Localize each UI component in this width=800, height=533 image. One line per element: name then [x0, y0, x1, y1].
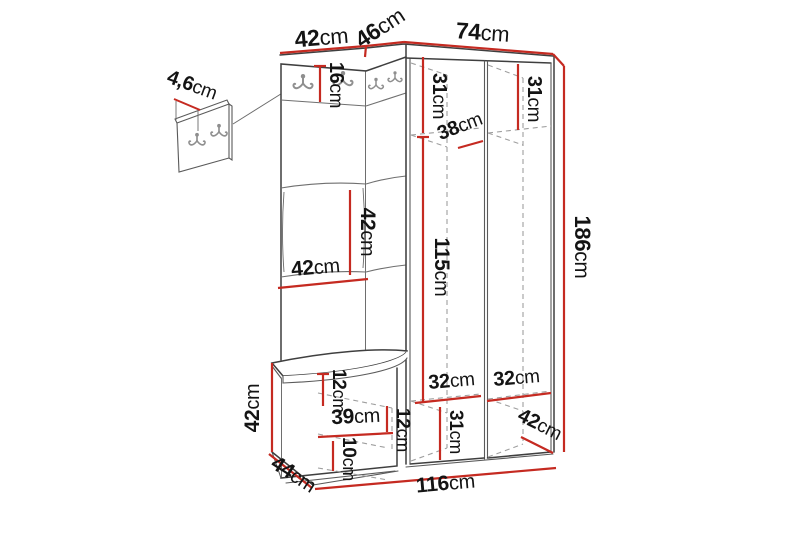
- dimension-label: 31cm: [428, 73, 450, 119]
- diagram-canvas: 4,6cm 42cm 46cm 74cm 16cm 31cm 31cm: [0, 0, 800, 533]
- dimension-label: 42cm: [294, 22, 350, 53]
- dimension-label: 115cm: [430, 238, 453, 297]
- dimension-label: 10cm: [338, 437, 359, 481]
- hook-panel-face: [177, 104, 229, 172]
- dimension-label: 42cm: [290, 254, 341, 281]
- corner-face: [366, 57, 406, 352]
- dimension-label: 12cm: [392, 408, 413, 452]
- hook-panel-inset: [175, 87, 292, 172]
- dimension-label: 4,6cm: [164, 66, 220, 104]
- dimension-label: 32cm: [492, 365, 540, 391]
- dimension-bench-height: 42cm: [241, 363, 272, 452]
- dimension-label: 31cm: [445, 410, 466, 454]
- left-panel-face: [281, 64, 366, 360]
- dimension-total-height: 186cm: [553, 54, 595, 452]
- dimension-label: 31cm: [523, 76, 545, 122]
- dimension-hook-board-height: 16cm: [314, 62, 347, 108]
- dimension-label: 42cm: [241, 384, 264, 433]
- dimension-line: [174, 99, 200, 110]
- dimension-label: 116cm: [415, 469, 476, 497]
- furniture-dimension-diagram: 4,6cm 42cm 46cm 74cm 16cm 31cm 31cm: [0, 0, 800, 533]
- corner-section: [366, 57, 406, 352]
- dimension-label: 74cm: [455, 17, 510, 47]
- dimension-label: 42cm: [356, 208, 379, 257]
- dimension-label: 16cm: [325, 62, 347, 108]
- dimension-detail-thickness: 4,6cm: [164, 66, 220, 110]
- dimension-label: 39cm: [331, 404, 381, 430]
- dimension-label: 32cm: [427, 368, 475, 394]
- left-coat-panel: [281, 64, 366, 360]
- dimension-label: 186cm: [570, 215, 595, 278]
